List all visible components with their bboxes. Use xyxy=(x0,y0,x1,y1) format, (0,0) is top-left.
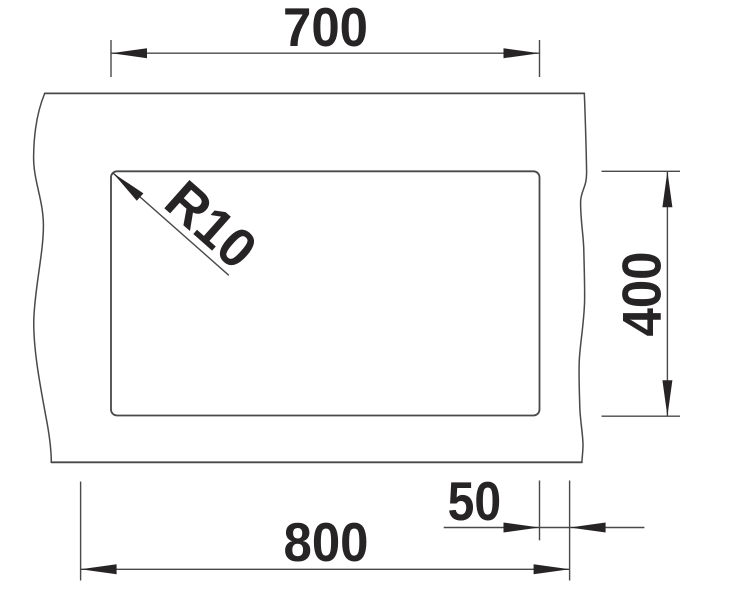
svg-text:800: 800 xyxy=(284,511,369,573)
svg-text:50: 50 xyxy=(448,470,502,532)
svg-text:400: 400 xyxy=(611,252,673,337)
svg-text:700: 700 xyxy=(283,0,368,58)
